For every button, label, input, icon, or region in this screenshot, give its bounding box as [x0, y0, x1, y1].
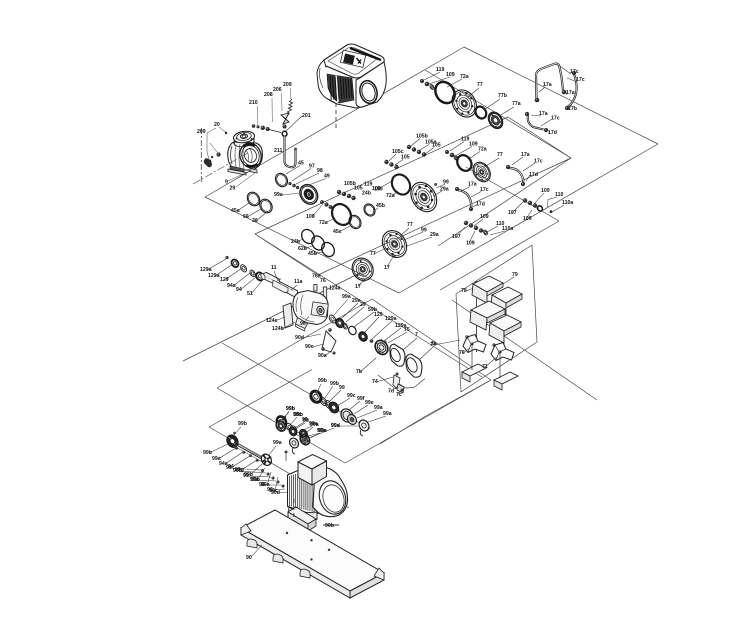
svg-text:90b: 90b: [325, 523, 334, 529]
svg-text:109: 109: [480, 214, 489, 220]
svg-text:99b: 99b: [330, 381, 339, 387]
svg-text:99a: 99a: [273, 440, 282, 446]
svg-text:94a: 94a: [227, 283, 236, 289]
svg-text:20: 20: [214, 122, 220, 128]
svg-text:99a: 99a: [383, 411, 392, 417]
svg-text:211: 211: [274, 148, 282, 154]
svg-text:17c: 17c: [480, 187, 489, 193]
svg-text:77b: 77b: [498, 93, 507, 99]
svg-text:99: 99: [302, 417, 308, 423]
svg-text:11: 11: [271, 265, 277, 271]
svg-text:109: 109: [469, 142, 478, 148]
svg-text:77: 77: [497, 152, 503, 158]
svg-text:99a: 99a: [331, 423, 340, 429]
svg-text:17d: 17d: [548, 130, 557, 136]
svg-text:72a: 72a: [386, 193, 395, 199]
svg-text:99a: 99a: [309, 421, 318, 427]
svg-text:99b: 99b: [203, 450, 212, 456]
svg-text:109: 109: [541, 188, 550, 194]
svg-text:119: 119: [436, 67, 444, 73]
svg-text:201: 201: [302, 113, 311, 119]
svg-text:79: 79: [512, 272, 518, 278]
svg-text:209: 209: [283, 82, 292, 88]
svg-text:99c: 99c: [347, 393, 356, 399]
svg-text:7b: 7b: [356, 369, 362, 375]
svg-text:17c: 17c: [551, 116, 560, 122]
svg-text:99a: 99a: [274, 192, 283, 198]
svg-text:17c: 17c: [576, 77, 585, 83]
svg-text:77: 77: [477, 82, 483, 88]
svg-text:99b: 99b: [238, 421, 247, 427]
svg-text:17c: 17c: [570, 69, 579, 75]
svg-text:29: 29: [230, 186, 236, 192]
svg-text:71: 71: [482, 364, 488, 370]
svg-text:99e: 99e: [365, 400, 374, 406]
svg-text:45b: 45b: [376, 203, 385, 209]
svg-text:209: 209: [197, 129, 206, 135]
svg-text:105: 105: [432, 143, 441, 149]
svg-text:77: 77: [370, 251, 376, 257]
svg-text:29: 29: [360, 302, 366, 308]
svg-text:77a: 77a: [512, 101, 521, 107]
svg-text:45: 45: [298, 161, 304, 167]
svg-text:45a: 45a: [231, 208, 240, 214]
svg-text:9: 9: [225, 180, 228, 186]
svg-text:24b: 24b: [291, 239, 300, 245]
svg-text:129: 129: [374, 312, 383, 318]
svg-text:72a: 72a: [478, 147, 487, 153]
svg-text:17c: 17c: [534, 159, 543, 165]
svg-text:17d: 17d: [529, 172, 538, 178]
svg-text:99a: 99a: [374, 405, 383, 411]
svg-text:94: 94: [236, 287, 242, 293]
svg-text:72a: 72a: [319, 220, 328, 226]
svg-text:90: 90: [246, 555, 252, 561]
svg-text:109: 109: [446, 72, 455, 78]
svg-text:109: 109: [466, 241, 475, 247]
svg-text:97: 97: [309, 164, 315, 170]
svg-text:24b: 24b: [362, 191, 371, 197]
svg-text:45c: 45c: [333, 229, 342, 235]
svg-text:74: 74: [372, 379, 378, 385]
svg-text:98: 98: [317, 168, 323, 174]
svg-text:66: 66: [243, 214, 249, 220]
svg-text:17: 17: [384, 265, 390, 271]
svg-text:107: 107: [452, 234, 461, 240]
svg-text:99: 99: [339, 385, 345, 391]
svg-text:76: 76: [320, 278, 326, 284]
svg-text:17a: 17a: [566, 90, 575, 96]
svg-text:17a: 17a: [521, 152, 530, 158]
svg-text:17: 17: [355, 284, 361, 290]
svg-text:210: 210: [249, 100, 258, 106]
svg-text:51: 51: [247, 291, 253, 297]
svg-text:17d: 17d: [476, 202, 485, 208]
svg-text:208: 208: [264, 92, 273, 98]
svg-text:17b: 17b: [568, 106, 577, 112]
svg-text:99b: 99b: [318, 378, 327, 384]
svg-text:129a: 129a: [385, 316, 397, 322]
svg-text:11a: 11a: [294, 279, 302, 285]
svg-text:49: 49: [324, 174, 330, 180]
svg-text:7: 7: [415, 332, 418, 338]
svg-text:77: 77: [407, 222, 413, 228]
svg-text:90a: 90a: [318, 353, 327, 359]
svg-text:76: 76: [459, 350, 465, 356]
svg-text:17a: 17a: [543, 82, 552, 88]
svg-text:62b: 62b: [298, 246, 307, 252]
svg-text:99c: 99c: [293, 412, 302, 418]
svg-text:105: 105: [401, 155, 410, 161]
svg-text:109: 109: [372, 186, 381, 192]
svg-text:124a: 124a: [329, 286, 341, 292]
svg-text:45b: 45b: [308, 251, 317, 257]
svg-text:206: 206: [273, 87, 282, 93]
svg-text:124c: 124c: [266, 318, 278, 324]
svg-text:36: 36: [252, 218, 258, 224]
svg-text:99a: 99a: [342, 294, 351, 300]
svg-text:99f: 99f: [357, 396, 365, 402]
